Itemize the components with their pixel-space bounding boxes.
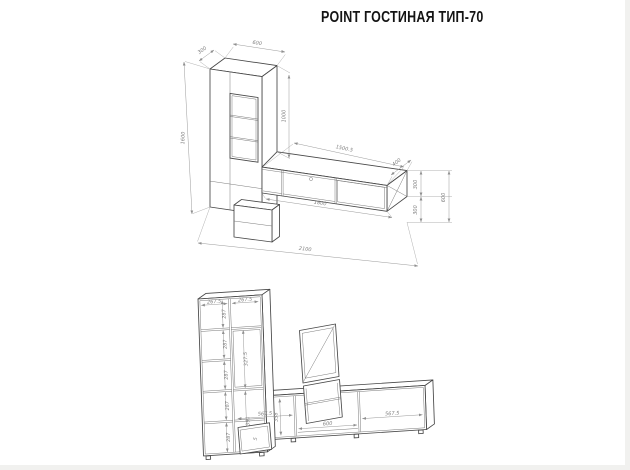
dim-label-tv-left: 567.5 (258, 411, 273, 418)
dim-label-shelf-2: 287 (222, 338, 228, 349)
dim-label-tv-height: 358 (273, 412, 279, 422)
dim-label-end-upper: 300 (413, 180, 419, 190)
dim-label-tv-right: 567.5 (385, 411, 400, 418)
dim-label-depth-top: 300 (197, 45, 208, 55)
dim-label-right-upper: 327.5 (243, 352, 249, 367)
dim-label-col-left: 267.5 (207, 299, 222, 306)
dim-label-shelf-3: 287 (224, 369, 230, 380)
dim-label-right-lower: 391 (245, 416, 251, 426)
dim-label-height: 1600 (180, 131, 186, 144)
dim-label-end-lower: 300 (413, 205, 419, 215)
dim-label-shelf-1: 287 (221, 308, 227, 319)
front-base-box: 5 (238, 423, 272, 454)
front-exploded-parts (300, 324, 343, 424)
dim-label-gap: 1000 (282, 110, 288, 123)
iso-base-drawer (234, 200, 280, 243)
dim-label-shelf-5: 287 (226, 431, 232, 442)
dim-label-col-right: 267.5 (238, 297, 253, 304)
iso-view: 300 600 1600 1000 1500.5 400 (180, 40, 452, 266)
iso-tv-bench (262, 152, 407, 212)
dim-label-tv-middle: 600 (323, 421, 333, 428)
technical-drawing: 300 600 1600 1000 1500.5 400 (0, 0, 630, 470)
dim-label-end-total: 600 (441, 193, 447, 203)
dim-label-overall-width: 2100 (298, 246, 311, 253)
dim-label-width-top: 600 (252, 40, 262, 47)
dim-label-shelf-4: 287 (225, 400, 231, 411)
front-view: 267.5 267.5 287 287 287 287 287 327.5 39… (198, 279, 435, 460)
